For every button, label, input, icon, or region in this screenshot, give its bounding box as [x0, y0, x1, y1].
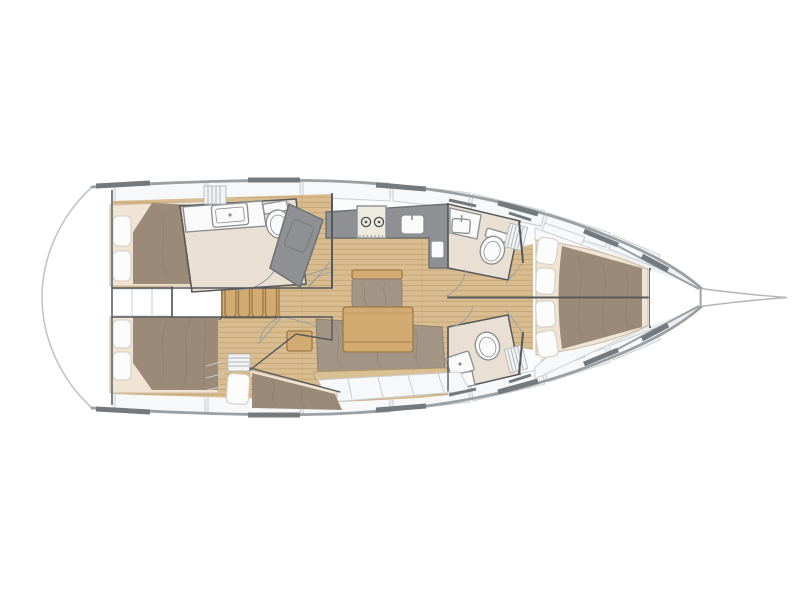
pillow [535, 237, 559, 266]
bench-cushion [352, 279, 402, 307]
bench-seat [352, 270, 402, 307]
swim-platform [42, 187, 112, 408]
pillow [535, 268, 555, 295]
galley-locker [431, 241, 444, 258]
companionway-corridor [112, 289, 172, 316]
pillow [113, 352, 131, 380]
pillow [535, 300, 555, 327]
yacht-floor-plan [0, 0, 810, 608]
galley-sink [401, 212, 424, 234]
floor-plan-drawing [0, 0, 810, 608]
pillow [113, 320, 131, 348]
pillow [226, 373, 250, 404]
pillow [113, 251, 131, 281]
vanity-sink [211, 202, 249, 227]
pillow [113, 216, 131, 246]
bowsprit [701, 289, 787, 307]
pillow [535, 330, 559, 359]
louvered-locker [204, 186, 226, 204]
dining-table [343, 307, 413, 352]
two-burner-stove [357, 206, 386, 238]
bench-backrest [352, 270, 402, 279]
